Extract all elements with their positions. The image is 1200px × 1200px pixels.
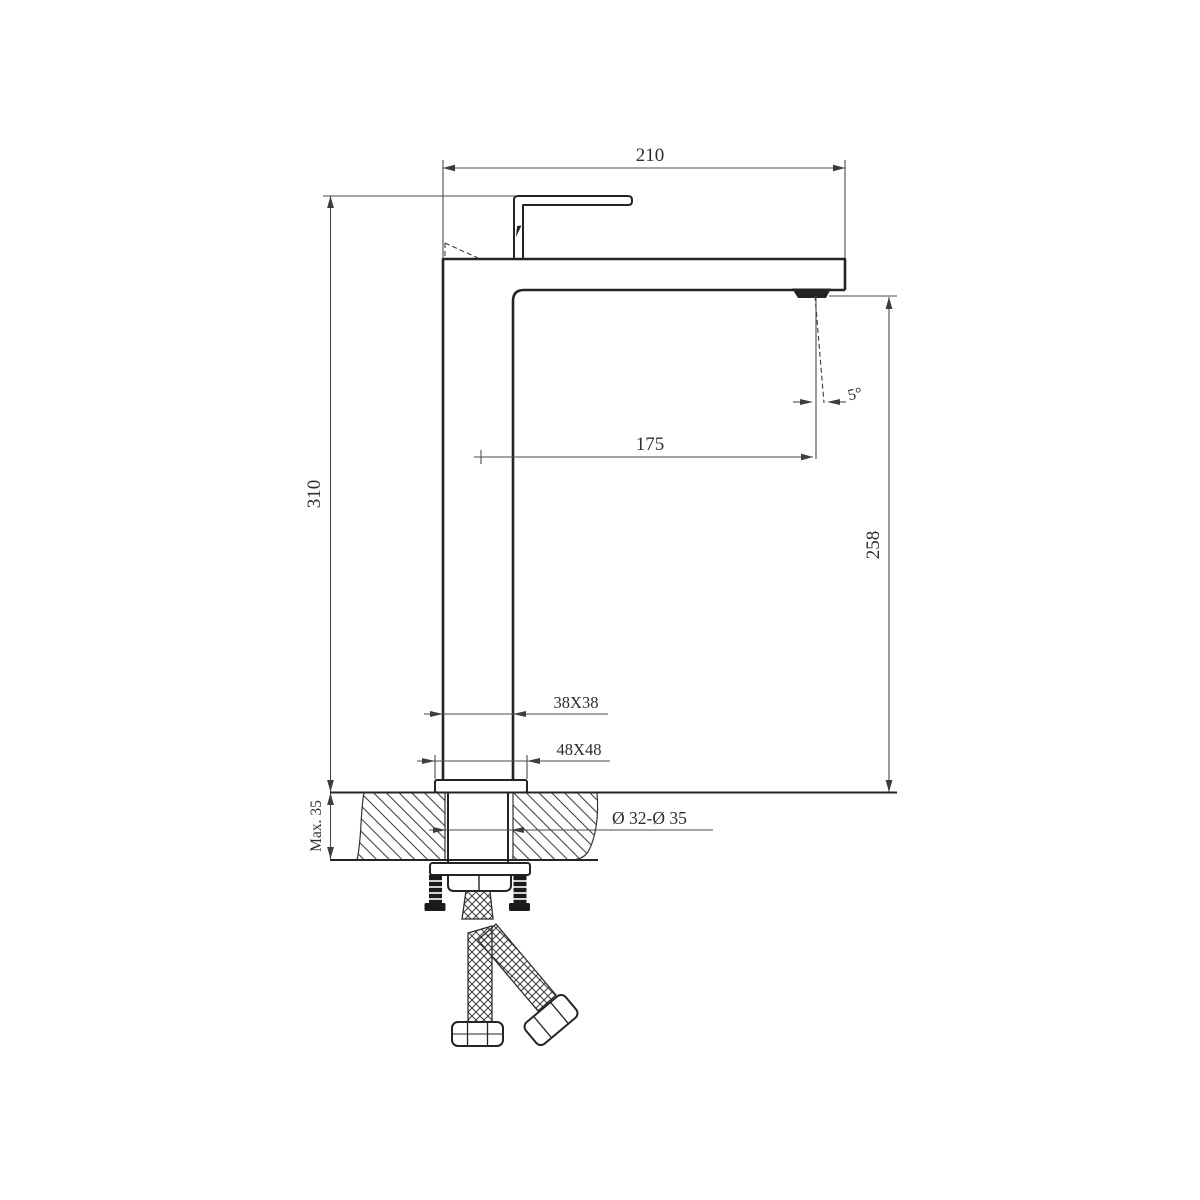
hose-nut-vertical [452, 1022, 503, 1046]
handle-lever [514, 196, 632, 259]
handle-joint-mark [516, 226, 522, 238]
faucet-technical-drawing: 210 310 Max. 35 258 175 5° 38X38 [0, 0, 1200, 1200]
dim-38x38-label: 38X38 [554, 693, 599, 712]
angle-arrow-left [800, 399, 813, 405]
dim-175-label: 175 [636, 434, 665, 455]
dimension-210: 210 [443, 145, 845, 259]
dimension-258: 258 [829, 296, 897, 792]
faucet-body [435, 196, 845, 862]
angle-arrow-right [827, 399, 840, 405]
technical-drawing-page: 210 310 Max. 35 258 175 5° 38X38 [0, 0, 1200, 1200]
arrow-left [430, 711, 443, 717]
hose-stub [462, 891, 493, 919]
handle-travel-edge-slanted [445, 243, 478, 258]
aerator-outlet [792, 289, 831, 299]
arrow-left [422, 758, 435, 764]
countertop-hatch-left [357, 793, 445, 861]
mounting-stud-left [425, 875, 446, 911]
dimension-38x38: 38X38 [424, 693, 608, 717]
dimension-175: 175 [474, 434, 813, 464]
angle-label: 5° [846, 385, 864, 405]
supply-hoses [452, 924, 580, 1047]
dim-max35-label: Max. 35 [308, 800, 325, 852]
hole-diameter-label: Ø 32-Ø 35 [612, 808, 687, 828]
dim-310-label: 310 [304, 480, 325, 509]
handle-travel-indicator [445, 243, 478, 258]
countertop-hatch-right [513, 793, 598, 861]
body-outline [443, 259, 845, 779]
base-flange [435, 780, 527, 793]
mounting-stud-right [509, 875, 530, 911]
mounting-hardware [425, 863, 531, 919]
arrow-right [513, 711, 526, 717]
mounting-plate [430, 863, 530, 875]
dimension-max-35: Max. 35 [308, 793, 331, 859]
dim-48x48-label: 48X48 [557, 740, 602, 759]
dimension-310: 310 [304, 196, 515, 792]
arrow-right [527, 758, 540, 764]
dim-258-label: 258 [863, 531, 884, 560]
spray-angle-callout: 5° [793, 296, 864, 459]
dim-210-label: 210 [636, 145, 665, 166]
